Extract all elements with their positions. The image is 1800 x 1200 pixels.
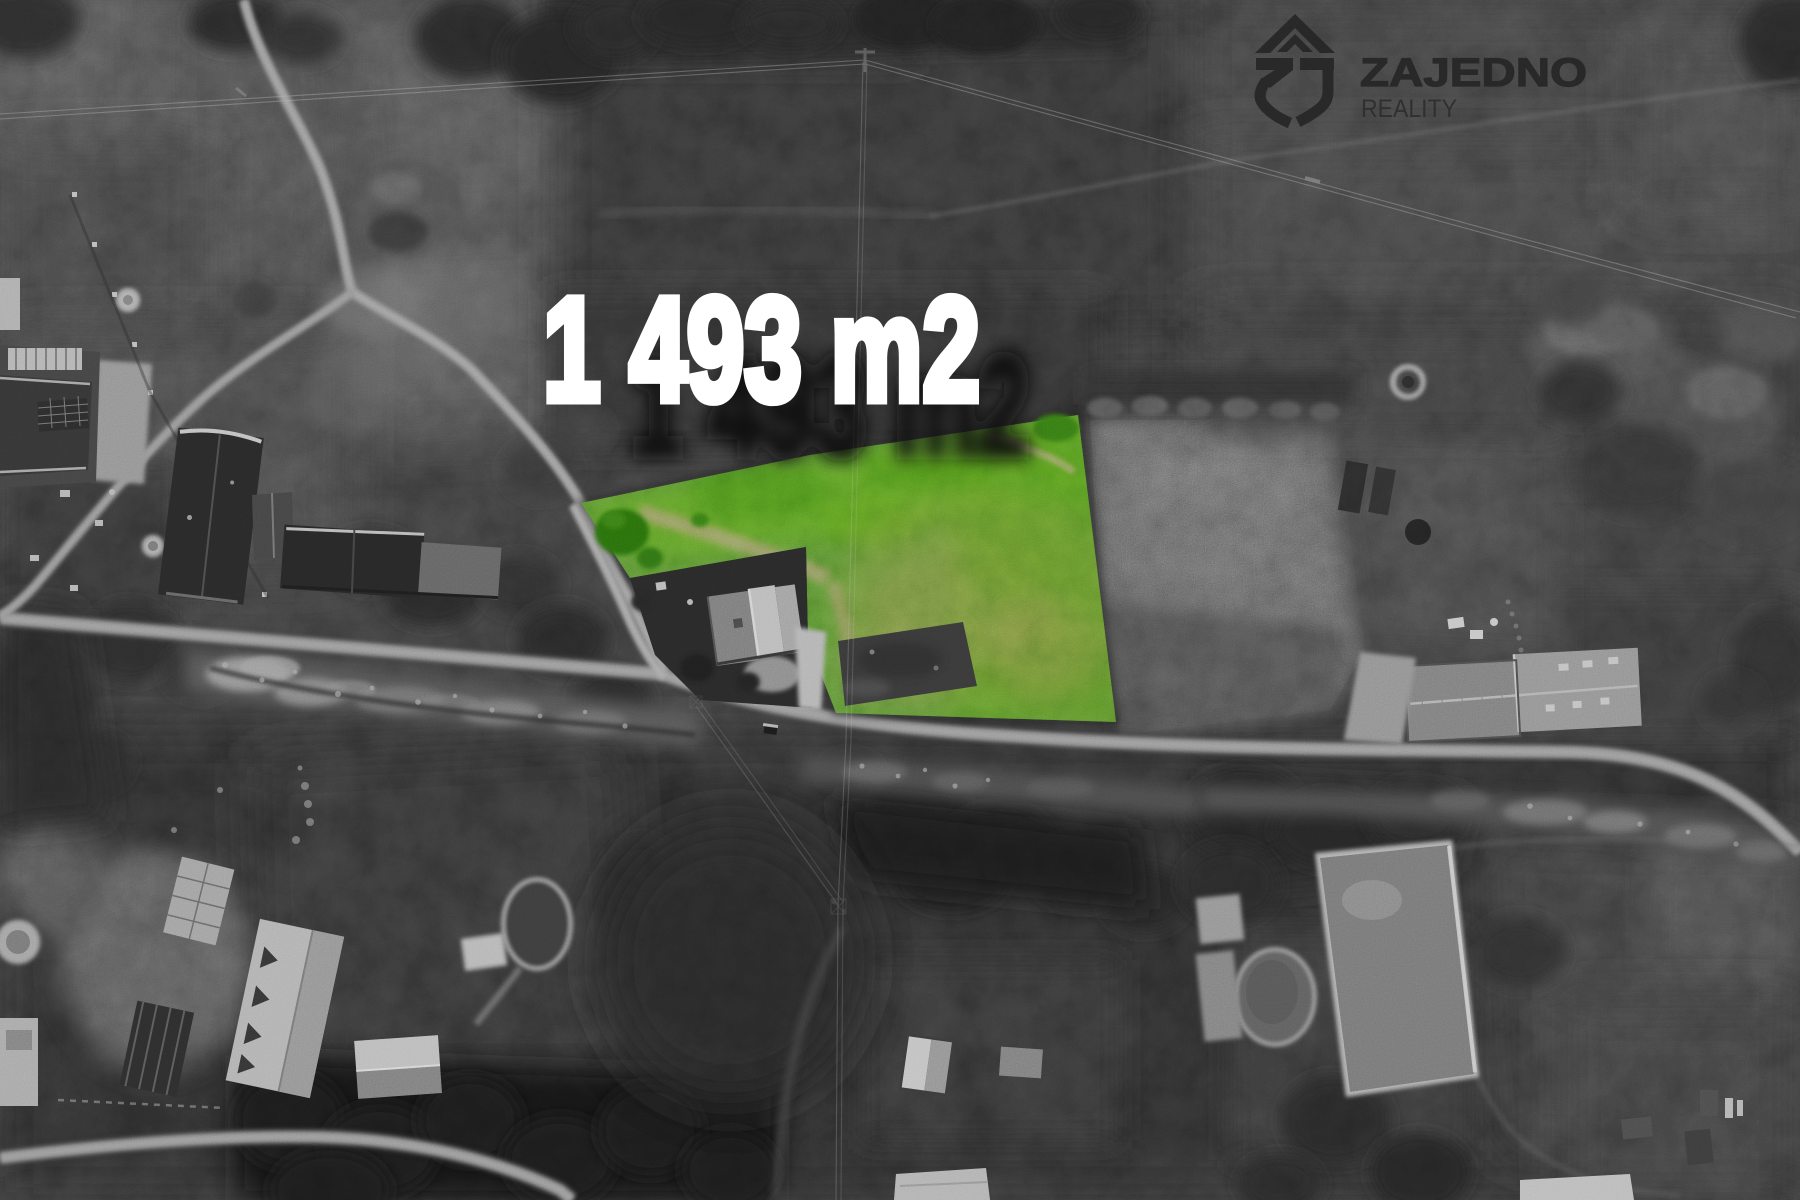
svg-text:REALITY: REALITY [1361, 95, 1457, 123]
svg-text:1 493 m2: 1 493 m2 [543, 268, 980, 432]
svg-text:ZAJEDNO: ZAJEDNO [1360, 51, 1587, 95]
